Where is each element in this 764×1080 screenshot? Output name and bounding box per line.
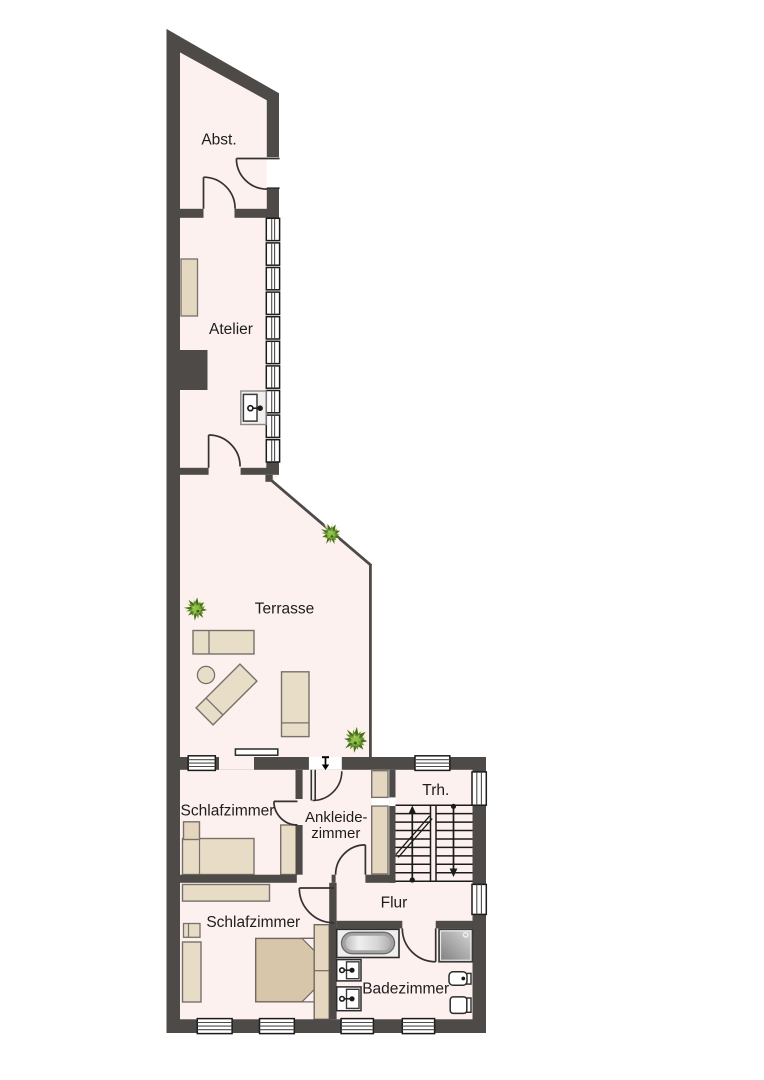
svg-text:Schlafzimmer: Schlafzimmer [206,914,300,931]
svg-text:Ankleide-: Ankleide- [305,809,368,826]
svg-text:Badezimmer: Badezimmer [362,981,449,998]
svg-text:Terrasse: Terrasse [255,601,314,618]
svg-text:Abst.: Abst. [201,132,236,149]
svg-text:zimmer: zimmer [311,825,360,842]
svg-text:Schlafzimmer: Schlafzimmer [181,802,275,819]
svg-text:Trh.: Trh. [422,782,449,799]
svg-text:Atelier: Atelier [209,321,253,338]
svg-text:Flur: Flur [381,895,408,912]
